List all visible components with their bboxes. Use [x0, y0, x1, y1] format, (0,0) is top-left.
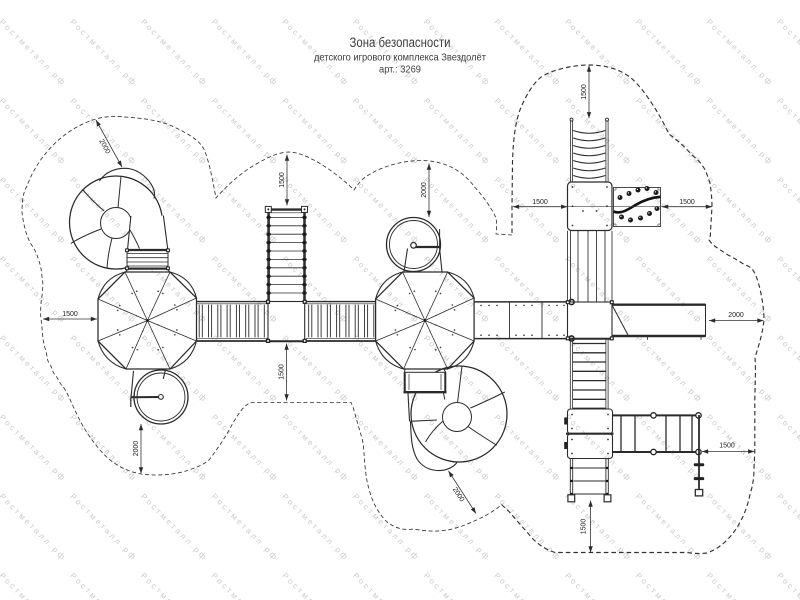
- svg-text:2000: 2000: [728, 312, 744, 319]
- svg-text:1500: 1500: [719, 443, 735, 450]
- svg-text:1500: 1500: [279, 172, 286, 188]
- svg-text:1500: 1500: [581, 84, 588, 100]
- svg-text:арт.: 3269: арт.: 3269: [379, 65, 421, 76]
- svg-text:2000: 2000: [451, 486, 465, 503]
- svg-text:1500: 1500: [580, 519, 587, 535]
- svg-text:1500: 1500: [679, 199, 695, 206]
- svg-text:1500: 1500: [532, 199, 548, 206]
- svg-text:детского игрового комплекса Зв: детского игрового комплекса Звездолёт: [314, 53, 486, 64]
- svg-text:2000: 2000: [421, 182, 428, 198]
- svg-text:1500: 1500: [278, 364, 285, 380]
- svg-text:2000: 2000: [133, 441, 140, 457]
- svg-text:1500: 1500: [62, 311, 78, 318]
- svg-text:Зона безопасности: Зона безопасности: [350, 35, 451, 50]
